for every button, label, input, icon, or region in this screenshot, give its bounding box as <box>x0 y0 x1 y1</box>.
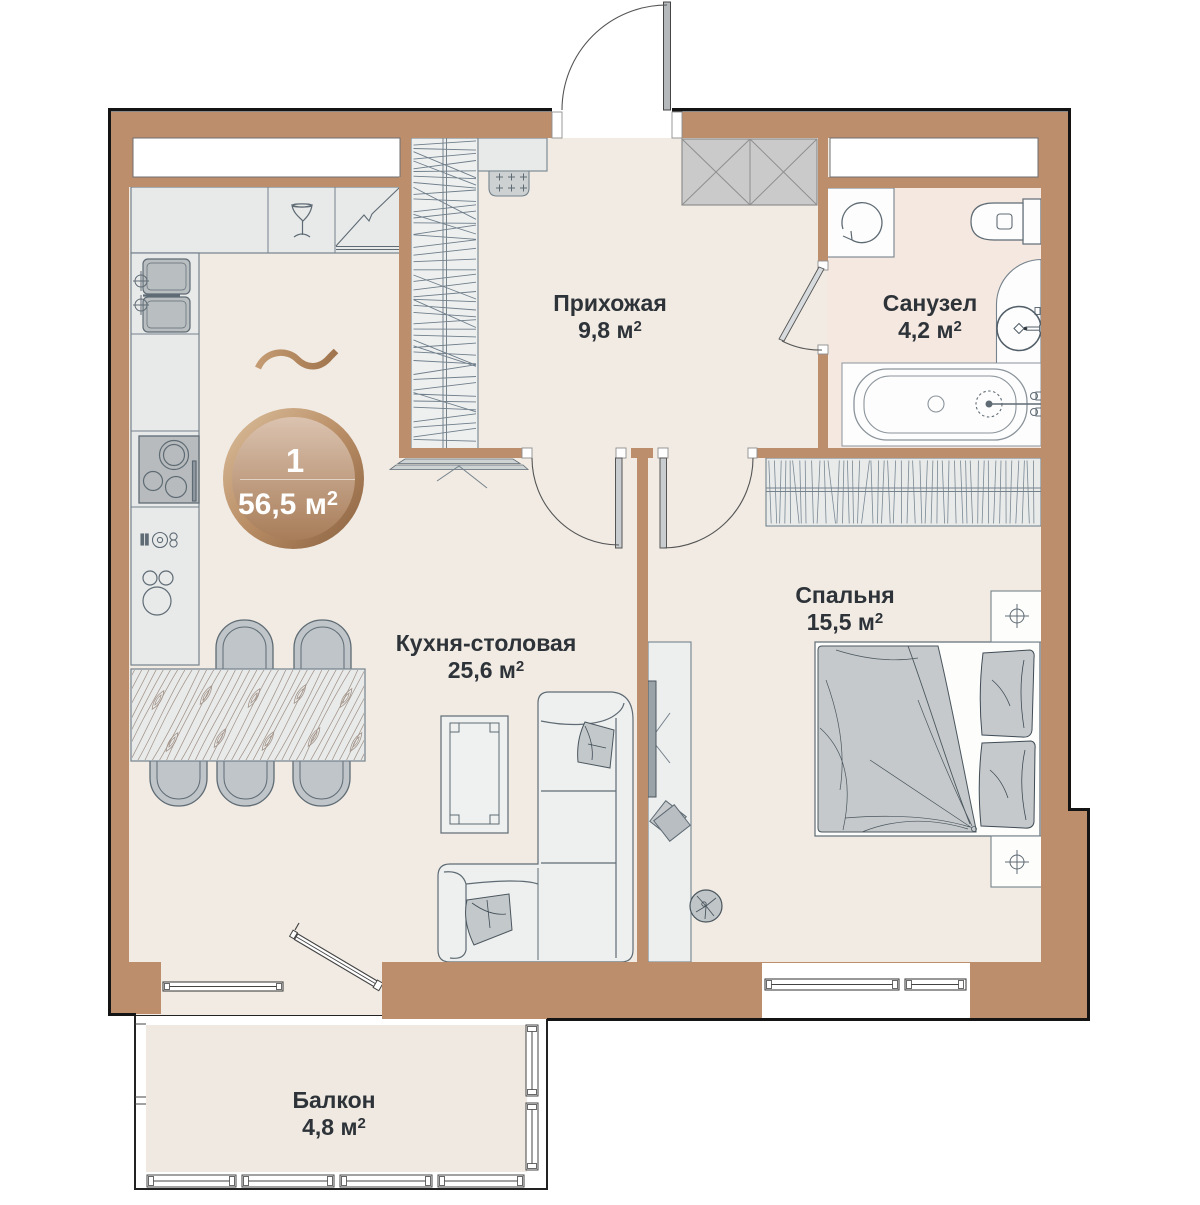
svg-text:1: 1 <box>286 442 304 479</box>
svg-text:Кухня-столовая: Кухня-столовая <box>396 630 577 656</box>
svg-text:56,5 м2: 56,5 м2 <box>238 488 338 521</box>
svg-text:Санузел: Санузел <box>883 290 978 316</box>
svg-text:Прихожая: Прихожая <box>553 290 666 316</box>
svg-text:Балкон: Балкон <box>292 1087 375 1113</box>
svg-text:25,6 м2: 25,6 м2 <box>448 657 525 683</box>
svg-text:9,8 м2: 9,8 м2 <box>578 317 642 343</box>
svg-text:15,5 м2: 15,5 м2 <box>807 609 884 635</box>
svg-text:4,8 м2: 4,8 м2 <box>302 1114 366 1140</box>
svg-text:4,2 м2: 4,2 м2 <box>898 317 962 343</box>
svg-text:Спальня: Спальня <box>795 582 894 608</box>
